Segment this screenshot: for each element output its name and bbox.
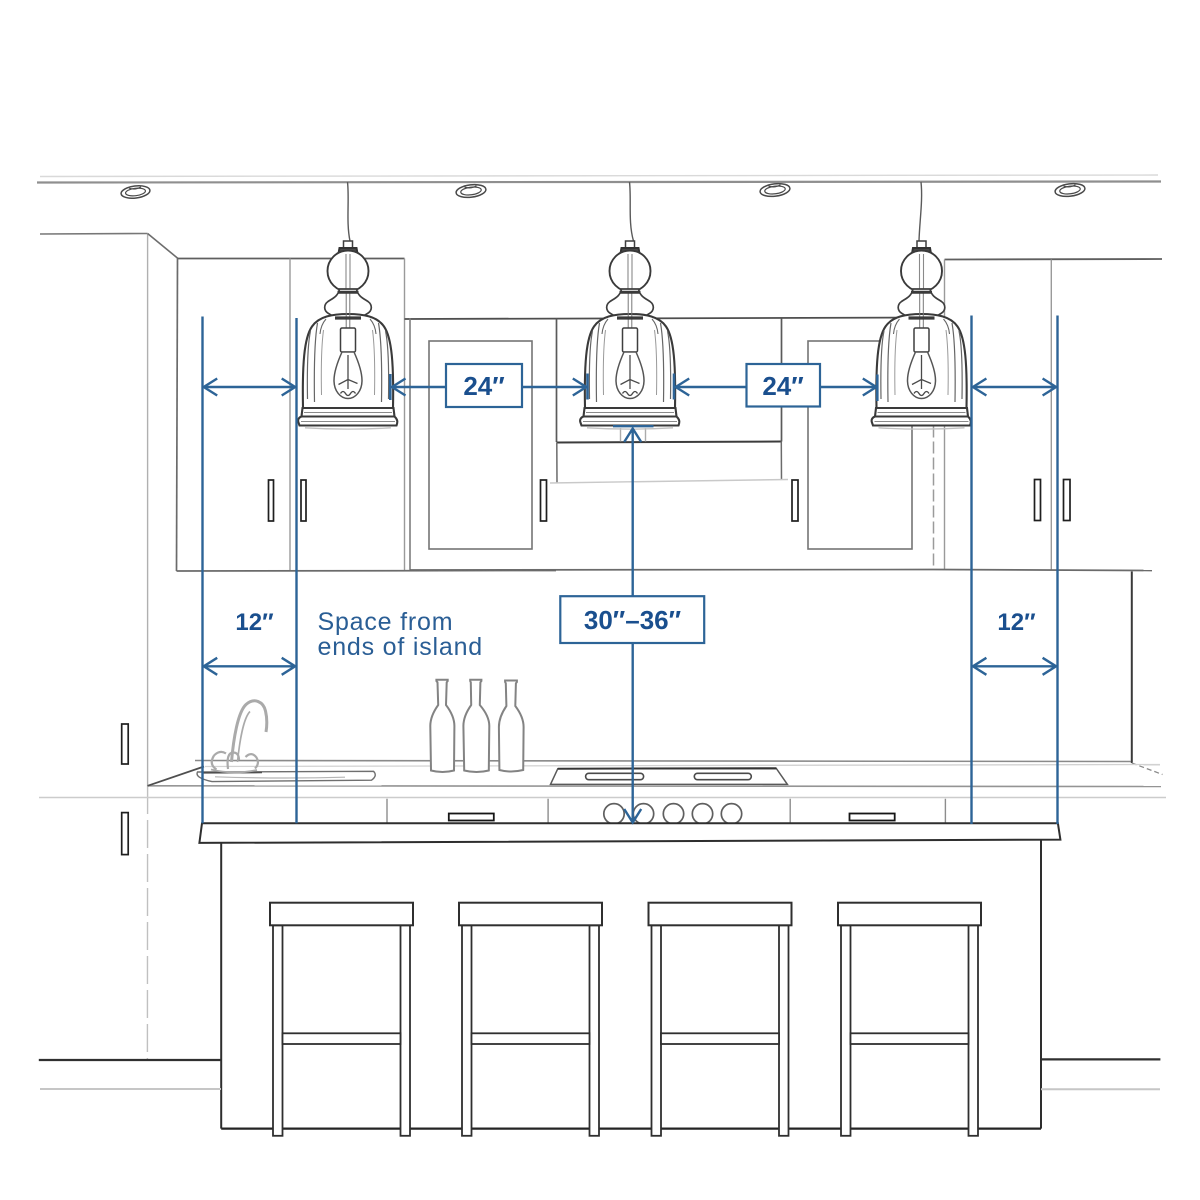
svg-text:12″: 12″ [235, 609, 274, 636]
svg-text:24″: 24″ [762, 371, 803, 401]
svg-text:ends of island: ends of island [318, 633, 483, 661]
svg-text:12″: 12″ [997, 609, 1036, 636]
svg-text:30″–36″: 30″–36″ [584, 605, 681, 635]
svg-text:Space from: Space from [318, 608, 454, 636]
svg-text:24″: 24″ [463, 371, 504, 401]
